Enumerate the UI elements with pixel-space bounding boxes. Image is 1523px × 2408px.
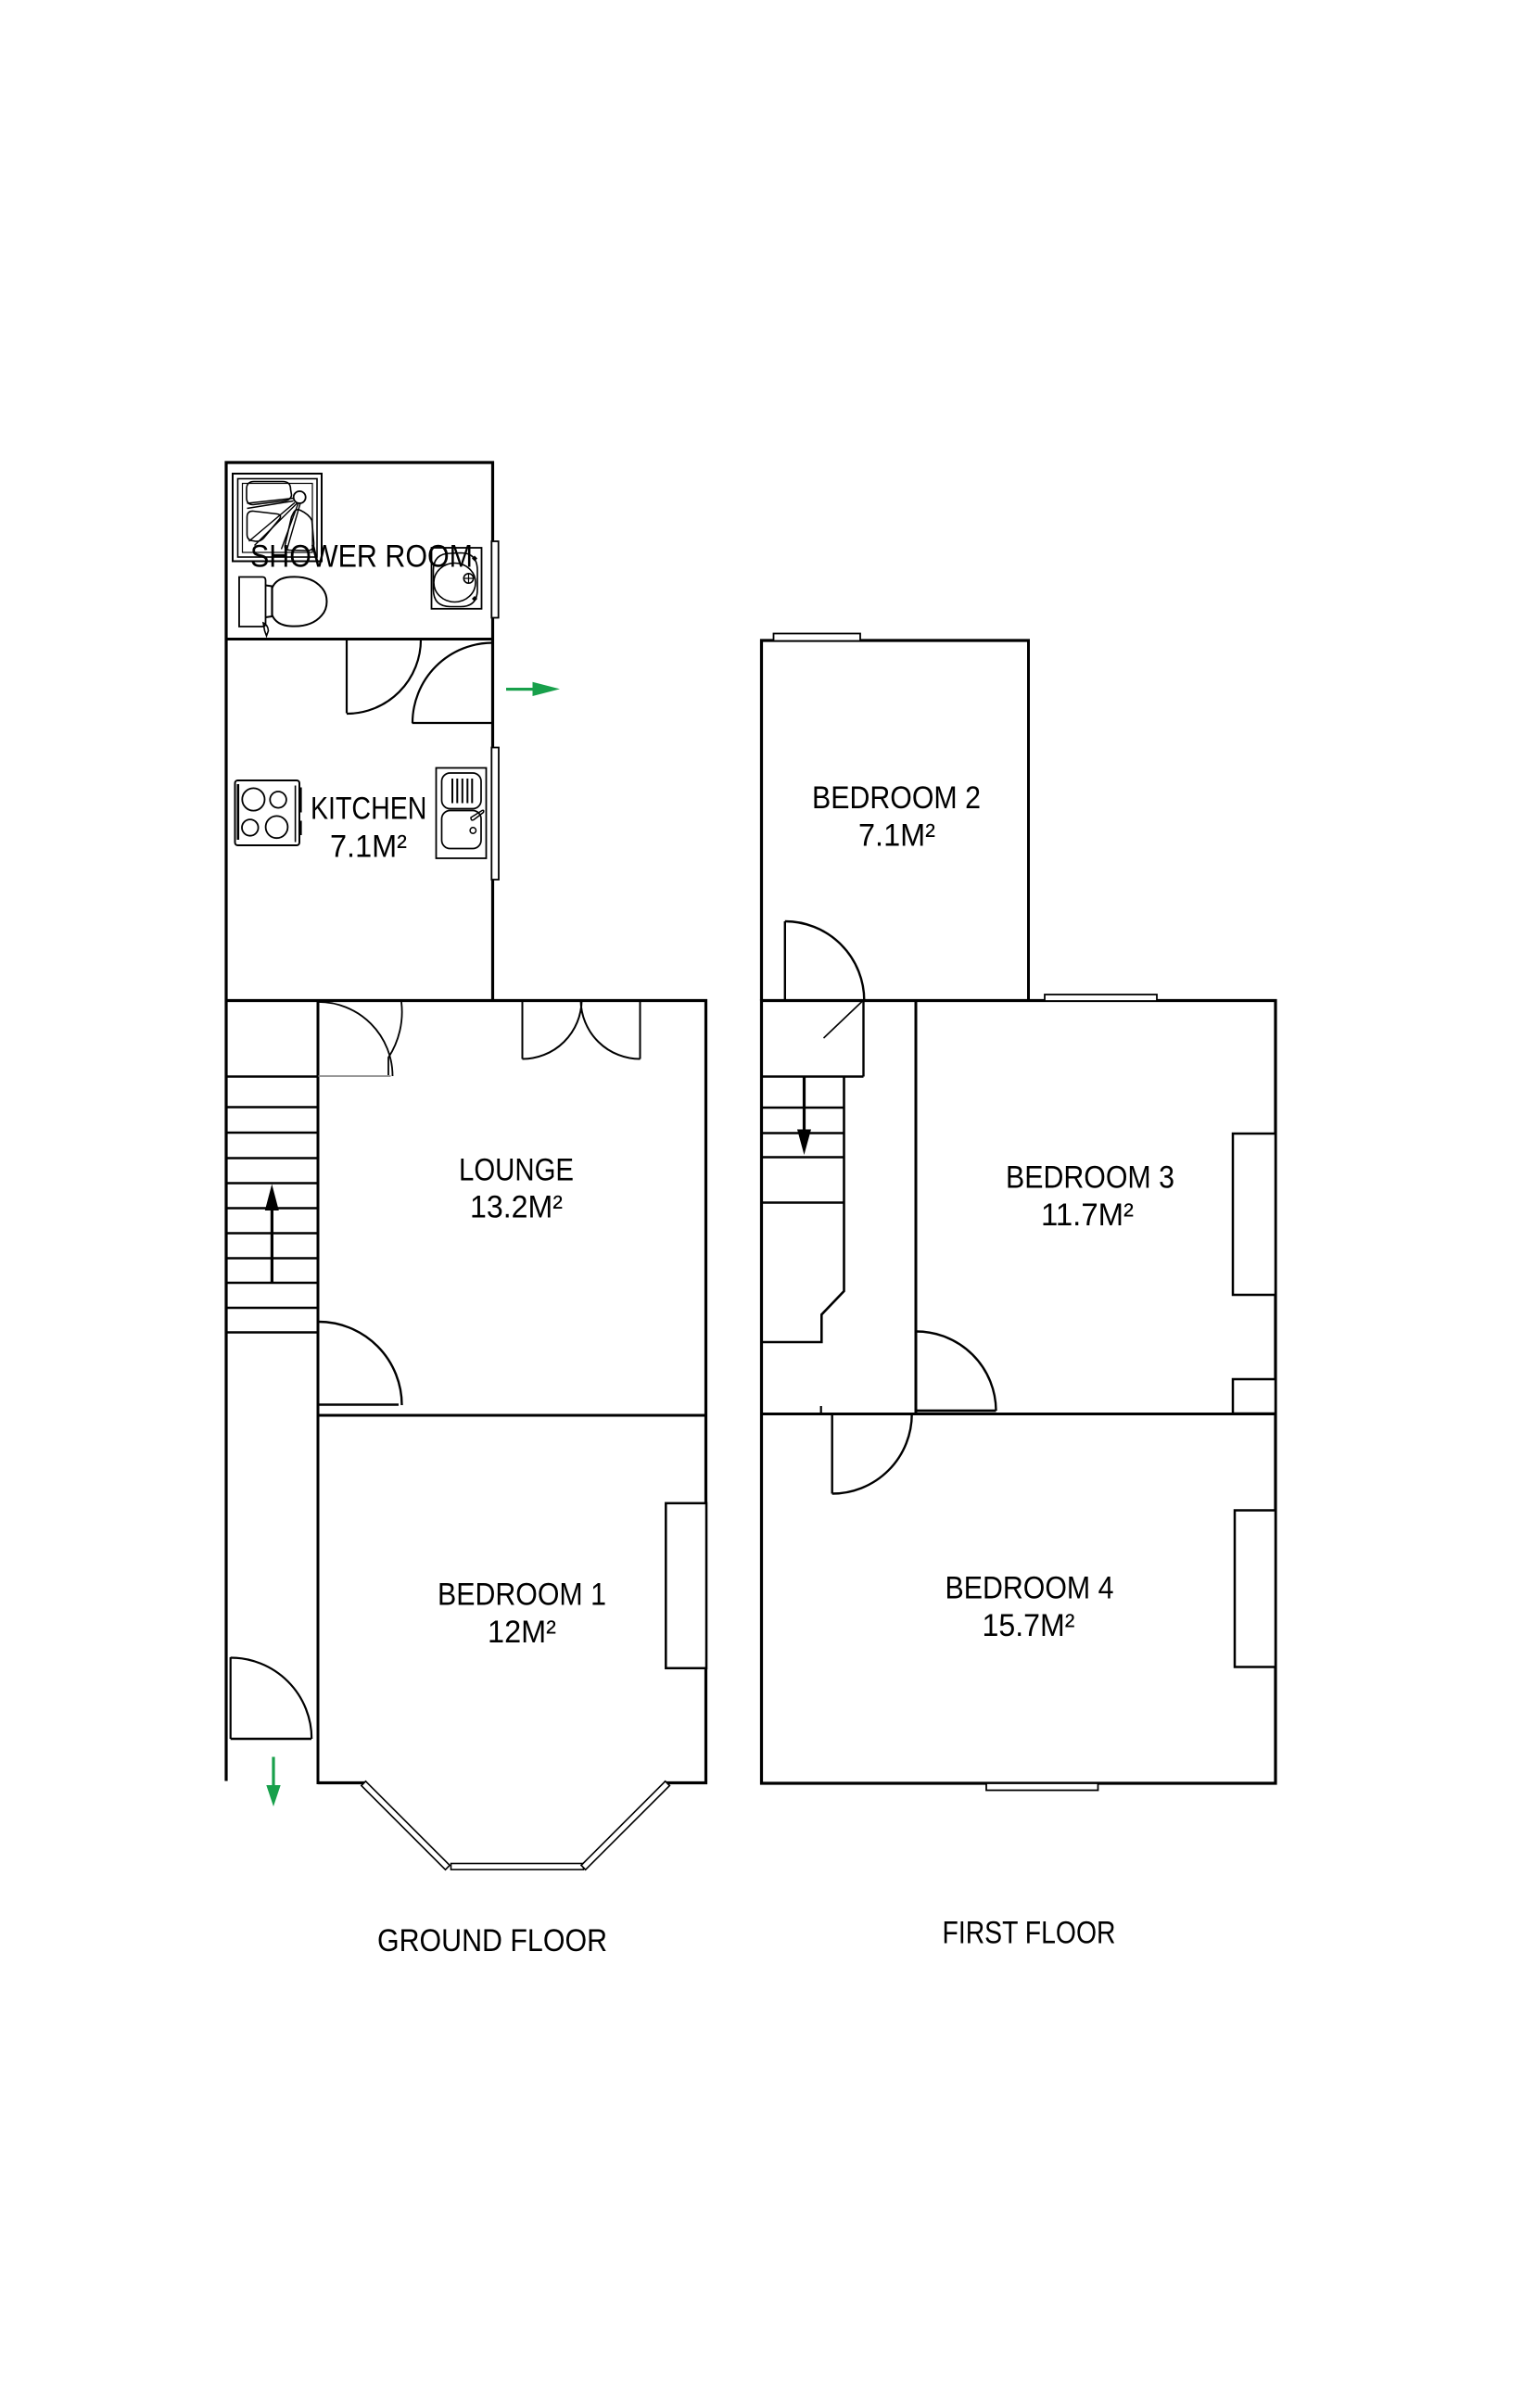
svg-text:7.1M²: 7.1M²: [330, 830, 407, 865]
svg-text:BEDROOM 1: BEDROOM 1: [438, 1578, 606, 1613]
svg-text:BEDROOM 3: BEDROOM 3: [1006, 1160, 1174, 1195]
svg-text:FIRST FLOOR: FIRST FLOOR: [943, 1916, 1116, 1951]
svg-text:BEDROOM 4: BEDROOM 4: [946, 1570, 1114, 1605]
svg-text:BEDROOM 2: BEDROOM 2: [812, 780, 981, 816]
svg-text:GROUND FLOOR: GROUND FLOOR: [377, 1923, 607, 1958]
svg-text:13.2M²: 13.2M²: [470, 1190, 563, 1225]
svg-text:7.1M²: 7.1M²: [858, 817, 935, 853]
svg-text:12M²: 12M²: [488, 1615, 556, 1650]
svg-text:LOUNGE: LOUNGE: [459, 1153, 574, 1188]
svg-text:KITCHEN: KITCHEN: [311, 792, 427, 827]
svg-text:15.7M²: 15.7M²: [983, 1608, 1075, 1643]
svg-text:11.7M²: 11.7M²: [1041, 1198, 1134, 1233]
svg-text:SHOWER ROOM: SHOWER ROOM: [250, 539, 473, 574]
